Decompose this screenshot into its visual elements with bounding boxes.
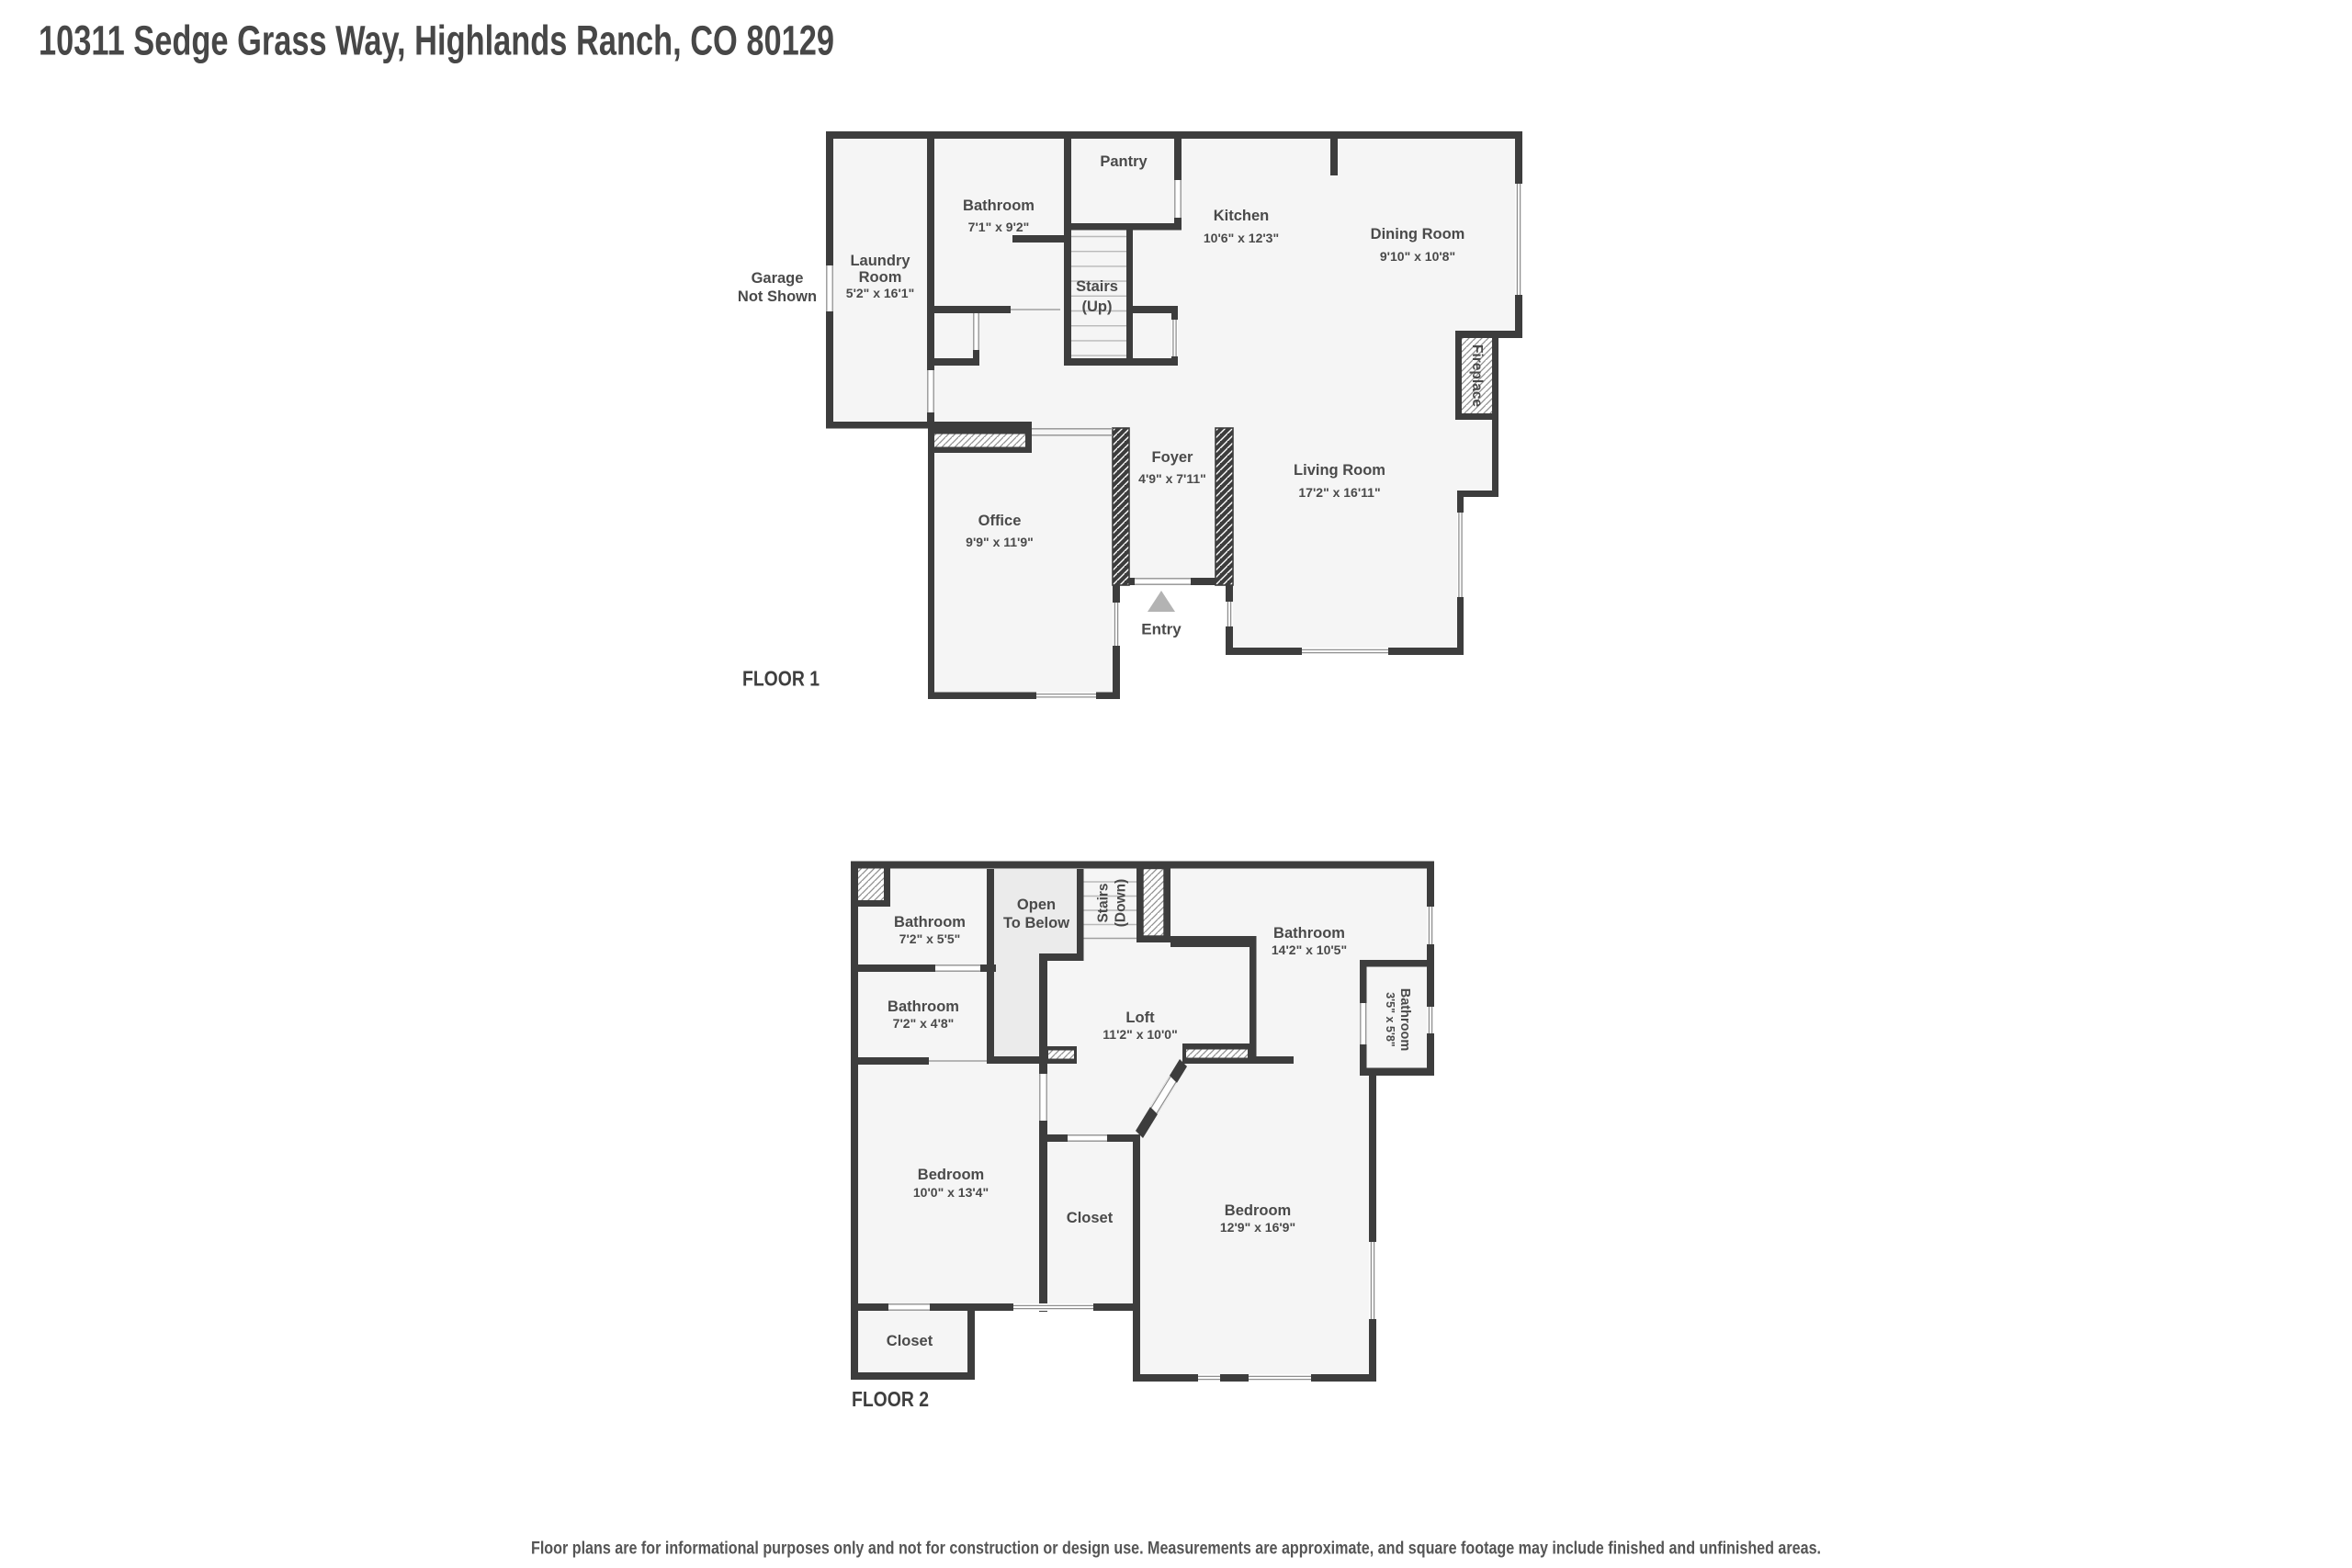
- svg-text:Laundry: Laundry: [850, 253, 910, 269]
- svg-text:10'0" x 13'4": 10'0" x 13'4": [913, 1185, 989, 1200]
- svg-text:Stairs: Stairs: [1076, 278, 1118, 295]
- svg-text:3'5" x 5'8": 3'5" x 5'8": [1384, 992, 1396, 1047]
- svg-text:Bedroom: Bedroom: [918, 1167, 984, 1183]
- svg-text:Open: Open: [1017, 897, 1056, 913]
- svg-text:Loft: Loft: [1125, 1010, 1155, 1026]
- svg-text:Fireplace: Fireplace: [1469, 344, 1485, 407]
- svg-text:Bathroom: Bathroom: [963, 197, 1035, 214]
- svg-text:12'9" x 16'9": 12'9" x 16'9": [1220, 1220, 1295, 1235]
- svg-text:Stairs: Stairs: [1096, 883, 1112, 922]
- svg-text:Floor plans are for informatio: Floor plans are for informational purpos…: [531, 1540, 1821, 1559]
- svg-text:Bathroom: Bathroom: [888, 998, 959, 1015]
- svg-text:Not Shown: Not Shown: [738, 288, 817, 305]
- svg-text:Living Room: Living Room: [1294, 462, 1385, 479]
- svg-text:7'1" x 9'2": 7'1" x 9'2": [968, 220, 1030, 234]
- svg-text:FLOOR 2: FLOOR 2: [852, 1387, 929, 1411]
- svg-text:7'2" x 4'8": 7'2" x 4'8": [893, 1016, 955, 1031]
- svg-text:Bathroom: Bathroom: [1397, 988, 1412, 1051]
- svg-text:FLOOR 1: FLOOR 1: [742, 667, 820, 691]
- svg-text:Closet: Closet: [887, 1333, 933, 1349]
- svg-text:4'9" x 7'11": 4'9" x 7'11": [1138, 471, 1206, 486]
- svg-text:Pantry: Pantry: [1100, 153, 1148, 170]
- svg-text:14'2" x 10'5": 14'2" x 10'5": [1272, 942, 1347, 957]
- svg-text:5'2" x 16'1": 5'2" x 16'1": [846, 286, 914, 300]
- svg-text:Dining Room: Dining Room: [1371, 226, 1465, 243]
- svg-text:Bedroom: Bedroom: [1225, 1202, 1291, 1219]
- svg-text:(Up): (Up): [1082, 299, 1113, 315]
- svg-text:Bathroom: Bathroom: [1273, 925, 1345, 942]
- svg-text:Office: Office: [978, 513, 1022, 529]
- svg-text:Room: Room: [859, 269, 902, 286]
- svg-text:Closet: Closet: [1067, 1210, 1114, 1226]
- svg-text:7'2" x 5'5": 7'2" x 5'5": [899, 931, 961, 946]
- svg-text:Foyer: Foyer: [1152, 449, 1194, 466]
- svg-text:(Down): (Down): [1114, 879, 1129, 928]
- svg-text:17'2" x 16'11": 17'2" x 16'11": [1298, 485, 1380, 500]
- svg-text:10311 Sedge Grass Way, Highlan: 10311 Sedge Grass Way, Highlands Ranch, …: [39, 17, 834, 64]
- svg-text:Bathroom: Bathroom: [894, 914, 966, 931]
- svg-text:Entry: Entry: [1141, 621, 1182, 638]
- svg-text:9'9" x 11'9": 9'9" x 11'9": [966, 535, 1034, 549]
- svg-text:9'10" x 10'8": 9'10" x 10'8": [1380, 249, 1455, 264]
- svg-text:Kitchen: Kitchen: [1214, 208, 1270, 224]
- svg-text:To Below: To Below: [1003, 915, 1069, 931]
- svg-text:Garage: Garage: [752, 270, 804, 287]
- svg-text:11'2" x 10'0": 11'2" x 10'0": [1102, 1027, 1177, 1042]
- svg-text:10'6" x 12'3": 10'6" x 12'3": [1204, 231, 1279, 245]
